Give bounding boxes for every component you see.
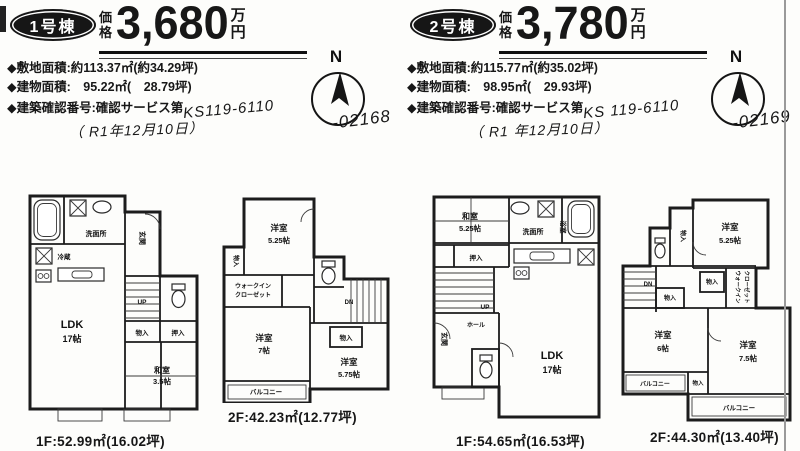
toilet-icon	[480, 355, 492, 378]
closet-label: 物入	[706, 278, 718, 286]
date-line: （ R1 年12月10日）	[407, 120, 725, 141]
room-label-bedroom: 洋室	[340, 357, 358, 367]
balcony-label: バルコニー	[640, 380, 670, 388]
floorplan-caption: 1F:52.99㎡(16.02坪)	[36, 430, 165, 450]
stairs-icon	[434, 273, 494, 308]
stairs-down-label: DN	[644, 282, 653, 288]
room-label-bedroom: 洋室	[255, 333, 273, 343]
stove-icon	[514, 267, 529, 279]
stove-icon	[36, 270, 51, 282]
room-label-bedroom: 洋室	[739, 340, 757, 350]
property-details: ◆敷地面積:約113.37㎡(約34.29坪) ◆建物面積: 95.22㎡( 2…	[7, 59, 325, 141]
compass-icon: N	[303, 46, 373, 132]
price-unit: 万円	[231, 7, 248, 42]
closet-label: 物入	[136, 328, 150, 337]
property-details: ◆敷地面積:約115.77㎡(約35.02坪) ◆建物面積: 98.95㎡( 2…	[407, 59, 725, 141]
price-underline	[99, 51, 307, 59]
door-arc	[145, 214, 160, 229]
price-value: 3,680	[116, 1, 229, 45]
door-arc	[499, 343, 513, 357]
floorplan-1f: 洗面所 冷蔵 LDK 17帖 玄関	[12, 176, 202, 426]
room-label-entrance: 玄関	[138, 231, 147, 245]
door-arc	[693, 242, 706, 255]
room-size-bedroom: 5.75帖	[338, 369, 361, 379]
floorplan-caption: 1F:54.65㎡(16.53坪)	[456, 430, 585, 450]
closet-label: 物入	[340, 333, 354, 342]
kitchen-counter-icon	[514, 249, 570, 263]
price-row: 価格 3,680 万円	[99, 2, 248, 45]
room-size-bedroom: 7.5帖	[739, 353, 757, 363]
washing-machine-icon	[538, 201, 554, 217]
refrigerator-icon	[36, 248, 52, 264]
room-label-tatami: 和室	[462, 211, 478, 221]
room-label-entrance: 玄関	[440, 332, 449, 346]
flyer-sheet: 1号棟 価格 3,680 万円 ◆敷地面積:約113.37㎡(約34.29坪) …	[0, 0, 800, 451]
closet-label: 物入	[664, 294, 676, 302]
land-area-line: ◆敷地面積:約115.77㎡(約35.02坪)	[407, 59, 725, 78]
floorplan-caption: 2F:44.30㎡(13.40坪)	[650, 426, 779, 446]
refrigerator-icon	[578, 249, 594, 265]
toilet-icon	[322, 261, 335, 284]
closet-label: 物入	[679, 230, 687, 242]
tatami-lines	[434, 197, 509, 245]
room-label-ldk: LDK	[61, 319, 84, 331]
room-size-tatami: 3.5帖	[153, 376, 171, 386]
land-area-line: ◆敷地面積:約113.37㎡(約34.29坪)	[7, 59, 325, 78]
price-row: 価格 3,780 万円	[499, 2, 648, 45]
room-size-bedroom: 6帖	[657, 343, 669, 353]
room-size-bedroom: 7帖	[258, 345, 270, 355]
walk-in-closet-label: クローゼット	[743, 270, 751, 303]
walk-in-closet-label: クローゼット	[235, 291, 271, 299]
scan-artifact	[784, 0, 786, 451]
date-handwritten: （ R1年12月10日）	[69, 117, 205, 143]
balcony-label: バルコニー	[250, 388, 282, 396]
walk-in-closet-label: ウォークイン	[235, 282, 271, 290]
room-size-bedroom: 5.25帖	[268, 235, 291, 245]
sink-icon	[511, 202, 529, 214]
north-label: N	[330, 47, 342, 66]
room-label-ldk: LDK	[541, 350, 564, 362]
unit-badge: 1号棟	[10, 9, 96, 41]
price-label: 価格	[499, 11, 514, 41]
floorplan-1f: 和室 5.25帖 押入 洗面所 浴室	[414, 177, 604, 422]
floorplan-caption: 2F:42.23㎡(12.77坪)	[228, 406, 357, 426]
closet-label: 物入	[692, 379, 704, 387]
compass-icon: N	[703, 46, 773, 132]
confirmation-text: ◆建築確認番号:確認サービス第	[7, 101, 183, 115]
room-label-bedroom: 洋室	[270, 223, 288, 233]
washing-machine-icon	[70, 200, 86, 216]
room-size-ldk: 17帖	[542, 364, 561, 375]
door-arc	[301, 209, 314, 222]
hall-label: ホール	[467, 322, 485, 329]
kitchen-counter-icon	[58, 268, 104, 281]
date-line: （ R1年12月10日）	[7, 120, 325, 141]
room-label-bath: 浴室	[559, 221, 568, 235]
room-size-tatami: 5.25帖	[459, 223, 482, 233]
north-label: N	[730, 47, 742, 66]
stairs-icon	[351, 279, 381, 323]
date-handwritten: （ R1 年12月10日）	[469, 117, 609, 143]
unit-1-section: 1号棟 価格 3,680 万円 ◆敷地面積:約113.37㎡(約34.29坪) …	[0, 0, 400, 451]
sink-icon	[93, 201, 111, 213]
toilet-icon	[655, 238, 665, 258]
floorplan-2f: 洋室 5.25帖 物入 DN 物入 物入 ウォークイン クローゼット 洋室 6帖	[608, 182, 798, 422]
stairs-up-label: UP	[480, 304, 490, 311]
room-label-fridge: 冷蔵	[58, 252, 72, 261]
confirmation-line: ◆建築確認番号:確認サービス第KS 119-6110	[407, 97, 725, 120]
room-label-tatami: 和室	[154, 365, 170, 375]
price-label: 価格	[99, 11, 114, 41]
room-label-washroom: 洗面所	[523, 227, 544, 236]
balcony-label: バルコニー	[723, 404, 755, 412]
closet-label: 押入	[470, 253, 484, 262]
confirmation-text: ◆建築確認番号:確認サービス第	[407, 101, 583, 115]
room-label-washroom: 洗面所	[86, 229, 107, 238]
bathtub-icon	[34, 200, 60, 240]
room-size-bedroom: 5.25帖	[719, 235, 742, 245]
room-label-bedroom: 洋室	[654, 330, 672, 340]
unit-2-section: 2号棟 価格 3,780 万円 ◆敷地面積:約115.77㎡(約35.02坪) …	[400, 0, 800, 451]
closet-label: 押入	[172, 328, 186, 337]
door-arc	[708, 328, 721, 341]
room-label-bedroom: 洋室	[721, 222, 739, 232]
confirmation-line: ◆建築確認番号:確認サービス第KS119-6110	[7, 97, 325, 120]
price-unit: 万円	[631, 7, 648, 42]
price-underline	[499, 51, 707, 59]
toilet-icon	[172, 284, 185, 308]
price-value: 3,780	[516, 1, 629, 45]
walk-in-closet-label: ウォークイン	[734, 270, 742, 304]
bathtub-icon	[568, 201, 594, 237]
floorplan-2f: 洋室 5.25帖 物入 ウォークイン クローゼット DN 物入 洋室 5.75帖…	[204, 181, 394, 403]
building-area-line: ◆建物面積: 95.22㎡( 28.79坪)	[7, 78, 325, 97]
closet-label: 物入	[232, 255, 240, 267]
room-size-ldk: 17帖	[62, 333, 81, 344]
stairs-down-label: DN	[345, 300, 354, 306]
unit-badge: 2号棟	[410, 9, 496, 41]
stairs-up-label: UP	[137, 299, 147, 306]
